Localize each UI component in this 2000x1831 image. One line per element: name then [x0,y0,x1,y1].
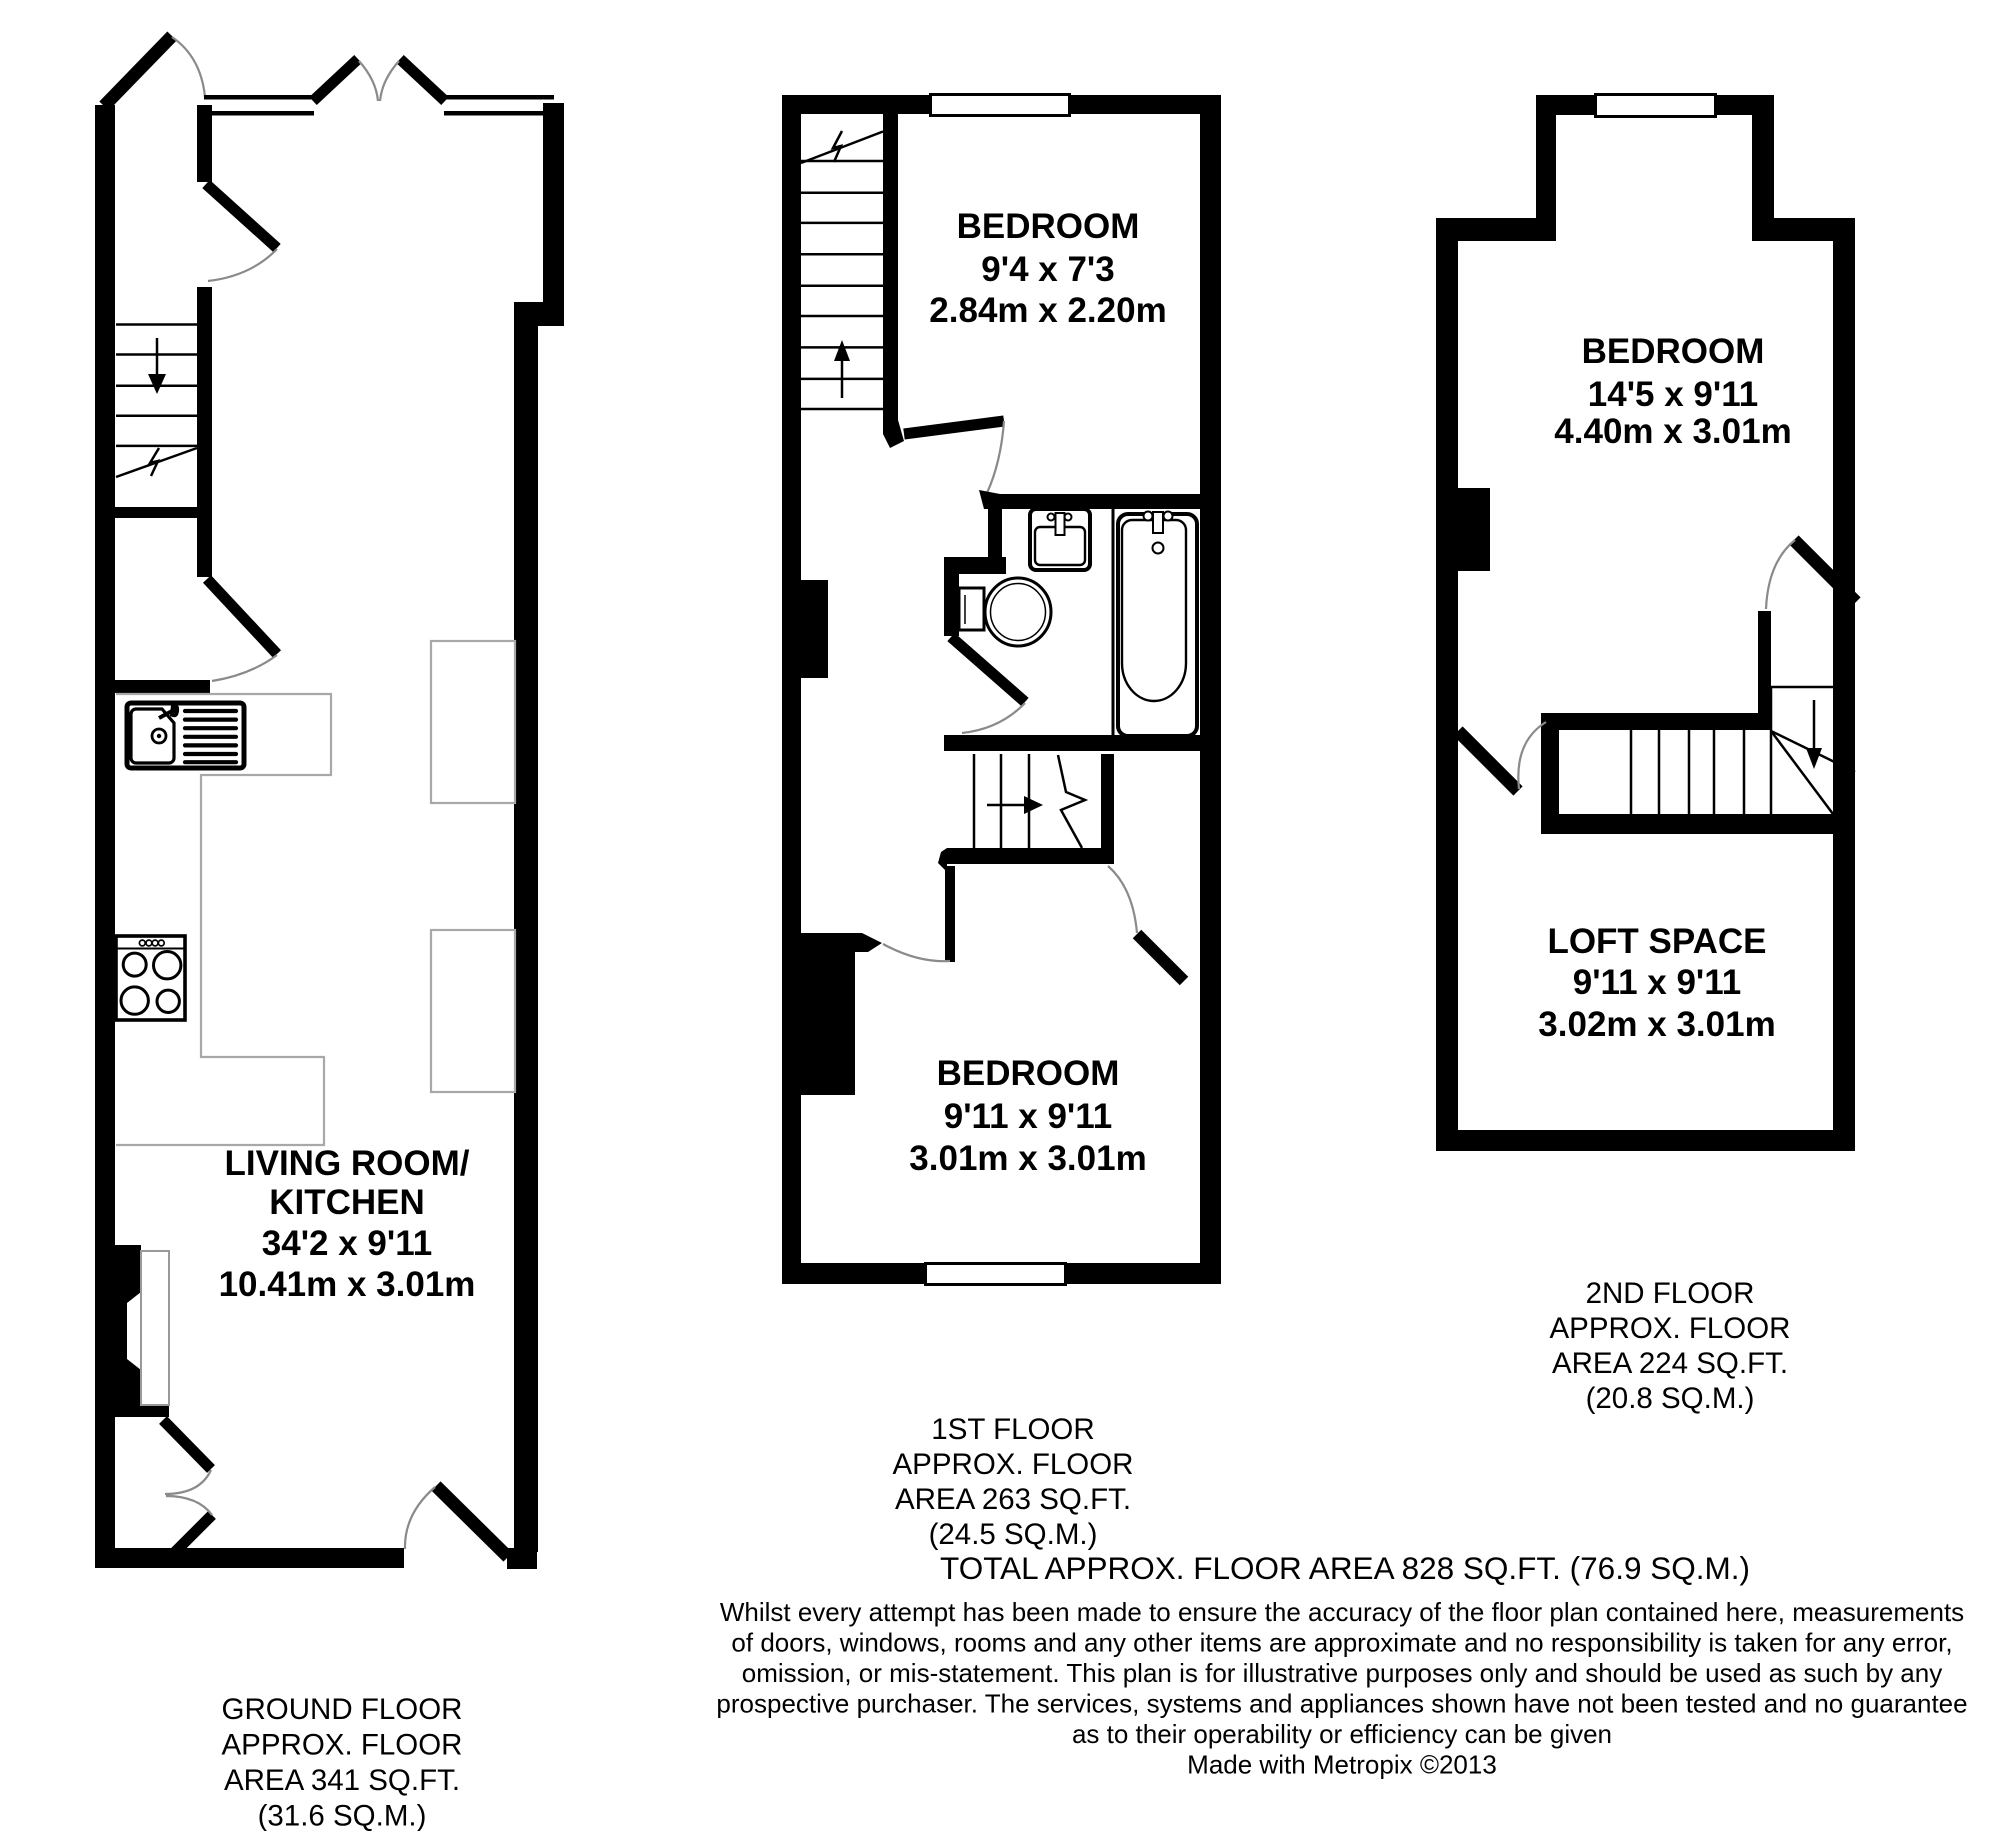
svg-text:AREA 263 SQ.FT.: AREA 263 SQ.FT. [895,1483,1131,1516]
svg-text:BEDROOM: BEDROOM [937,1054,1120,1093]
svg-text:TOTAL APPROX. FLOOR AREA 828 S: TOTAL APPROX. FLOOR AREA 828 SQ.FT. (76.… [940,1550,1750,1586]
svg-text:AREA 224 SQ.FT.: AREA 224 SQ.FT. [1552,1347,1788,1380]
svg-text:omission, or mis-statement. Th: omission, or mis-statement. This plan is… [742,1658,1942,1688]
svg-text:GROUND FLOOR: GROUND FLOOR [222,1693,463,1726]
svg-text:(31.6 SQ.M.): (31.6 SQ.M.) [258,1800,427,1831]
svg-text:prospective purchaser. The ser: prospective purchaser. The services, sys… [716,1689,1967,1719]
svg-text:3.02m x 3.01m: 3.02m x 3.01m [1538,1005,1775,1044]
svg-text:AREA 341 SQ.FT.: AREA 341 SQ.FT. [224,1764,460,1797]
svg-text:LOFT SPACE: LOFT SPACE [1547,922,1766,961]
svg-text:BEDROOM: BEDROOM [957,207,1140,246]
svg-text:APPROX. FLOOR: APPROX. FLOOR [1550,1312,1791,1345]
svg-text:KITCHEN: KITCHEN [269,1183,425,1222]
svg-text:3.01m x 3.01m: 3.01m x 3.01m [909,1139,1146,1178]
svg-text:Made with Metropix ©2013: Made with Metropix ©2013 [1187,1750,1497,1780]
svg-text:14'5 x 9'11: 14'5 x 9'11 [1588,375,1758,414]
svg-text:as to their operability or eff: as to their operability or efficiency ca… [1072,1719,1612,1749]
svg-text:APPROX. FLOOR: APPROX. FLOOR [893,1448,1134,1481]
svg-text:of doors, windows, rooms and a: of doors, windows, rooms and any other i… [731,1628,1952,1658]
svg-text:4.40m x 3.01m: 4.40m x 3.01m [1554,412,1791,451]
svg-text:9'11 x 9'11: 9'11 x 9'11 [1573,963,1742,1002]
svg-text:10.41m x 3.01m: 10.41m x 3.01m [219,1265,476,1304]
svg-text:2.84m x 2.20m: 2.84m x 2.20m [929,291,1166,330]
svg-text:APPROX. FLOOR: APPROX. FLOOR [222,1729,463,1762]
svg-text:(20.8 SQ.M.): (20.8 SQ.M.) [1586,1382,1755,1415]
svg-text:2ND FLOOR: 2ND FLOOR [1586,1277,1755,1310]
svg-text:9'11 x 9'11: 9'11 x 9'11 [944,1097,1113,1136]
svg-text:LIVING ROOM/: LIVING ROOM/ [225,1144,470,1183]
svg-text:(24.5 SQ.M.): (24.5 SQ.M.) [929,1518,1098,1551]
svg-text:BEDROOM: BEDROOM [1582,332,1765,371]
svg-text:Whilst every attempt has been: Whilst every attempt has been made to en… [720,1597,1964,1627]
svg-text:34'2 x 9'11: 34'2 x 9'11 [262,1224,432,1263]
svg-text:1ST FLOOR: 1ST FLOOR [931,1413,1094,1446]
svg-text:9'4 x 7'3: 9'4 x 7'3 [981,250,1114,289]
